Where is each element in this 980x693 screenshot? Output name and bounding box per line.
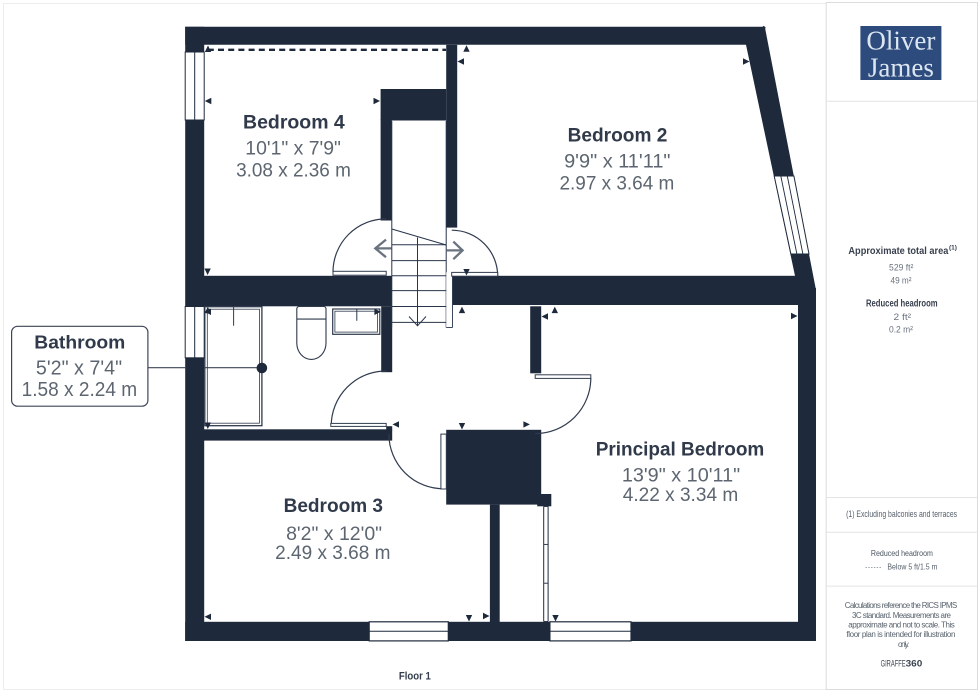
- svg-text:floor plan is intended for ill: floor plan is intended for illustration: [846, 630, 955, 639]
- svg-text:GIRAFFE: GIRAFFE: [881, 658, 906, 668]
- svg-text:5'2" x 7'4": 5'2" x 7'4": [36, 358, 122, 380]
- svg-text:0.2 m²: 0.2 m²: [889, 325, 914, 336]
- svg-text:(1): (1): [949, 245, 957, 252]
- svg-text:Oliver: Oliver: [866, 26, 935, 56]
- svg-text:James: James: [868, 53, 934, 83]
- svg-text:approximate and not to scale.: approximate and not to scale. This: [848, 621, 955, 630]
- svg-text:360: 360: [906, 658, 923, 668]
- svg-text:2 ft²: 2 ft²: [894, 312, 912, 323]
- svg-text:Floor 1: Floor 1: [399, 671, 431, 683]
- svg-text:Bedroom 2: Bedroom 2: [568, 126, 668, 147]
- svg-text:Approximate total area: Approximate total area: [848, 245, 948, 257]
- svg-text:3.08 x 2.36 m: 3.08 x 2.36 m: [236, 160, 351, 182]
- svg-text:10'1" x 7'9": 10'1" x 7'9": [245, 138, 341, 160]
- svg-text:Reduced headroom: Reduced headroom: [866, 299, 938, 310]
- svg-text:49 m²: 49 m²: [891, 276, 913, 287]
- svg-text:2.49 x 3.68 m: 2.49 x 3.68 m: [275, 542, 390, 564]
- svg-text:Bedroom 3: Bedroom 3: [284, 496, 383, 517]
- svg-text:2.97 x 3.64 m: 2.97 x 3.64 m: [560, 173, 675, 195]
- svg-text:(1) Excluding balconies and te: (1) Excluding balconies and terraces: [846, 509, 957, 520]
- svg-text:Calculations reference the RIC: Calculations reference the RICS IPMS: [845, 601, 958, 610]
- svg-text:9'9" x 11'11": 9'9" x 11'11": [564, 151, 670, 173]
- svg-text:1.58 x 2.24 m: 1.58 x 2.24 m: [22, 379, 138, 401]
- svg-text:529 ft²: 529 ft²: [889, 263, 914, 274]
- svg-text:Bedroom 4: Bedroom 4: [243, 113, 345, 134]
- svg-text:4.22 x 3.34 m: 4.22 x 3.34 m: [623, 484, 738, 506]
- svg-text:3C standard. Measurements are: 3C standard. Measurements are: [852, 611, 952, 620]
- svg-text:only.: only.: [898, 640, 909, 649]
- svg-text:Bathroom: Bathroom: [34, 332, 125, 353]
- svg-text:Reduced headroom: Reduced headroom: [871, 548, 933, 558]
- svg-text:Below 5 ft/1.5 m: Below 5 ft/1.5 m: [887, 561, 937, 571]
- svg-text:Principal Bedroom: Principal Bedroom: [596, 439, 765, 460]
